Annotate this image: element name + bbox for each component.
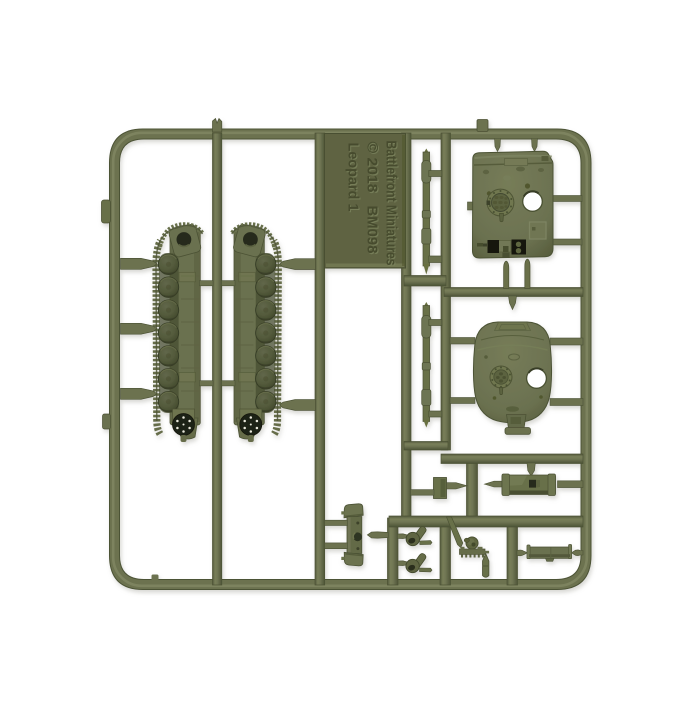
svg-text:Leopard 1: Leopard 1: [345, 143, 362, 212]
svg-text:© 2018: © 2018: [364, 142, 381, 193]
svg-text:Battlefront Miniatures: Battlefront Miniatures: [383, 141, 400, 266]
svg-text:BM098: BM098: [364, 206, 381, 254]
